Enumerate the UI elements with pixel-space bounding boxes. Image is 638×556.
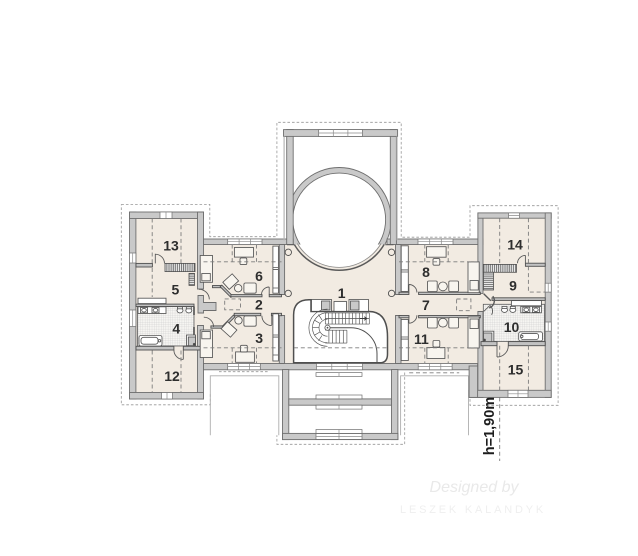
svg-text:7: 7 xyxy=(422,297,430,313)
svg-text:5: 5 xyxy=(172,282,180,298)
svg-text:1: 1 xyxy=(338,285,346,301)
svg-text:10: 10 xyxy=(504,319,520,335)
svg-text:13: 13 xyxy=(163,238,179,254)
svg-text:15: 15 xyxy=(508,362,524,378)
svg-text:8: 8 xyxy=(422,264,430,280)
svg-text:3: 3 xyxy=(255,330,263,346)
svg-text:4: 4 xyxy=(172,320,180,336)
svg-text:6: 6 xyxy=(255,268,263,284)
svg-text:2: 2 xyxy=(255,297,263,313)
svg-text:h=1,90m: h=1,90m xyxy=(482,397,498,455)
svg-text:14: 14 xyxy=(507,237,523,253)
svg-text:11: 11 xyxy=(414,331,429,347)
svg-text:12: 12 xyxy=(164,368,180,384)
svg-text:Designed by: Designed by xyxy=(430,479,520,496)
svg-text:9: 9 xyxy=(509,278,517,294)
svg-text:LESZEK KALANDYK: LESZEK KALANDYK xyxy=(400,504,546,516)
